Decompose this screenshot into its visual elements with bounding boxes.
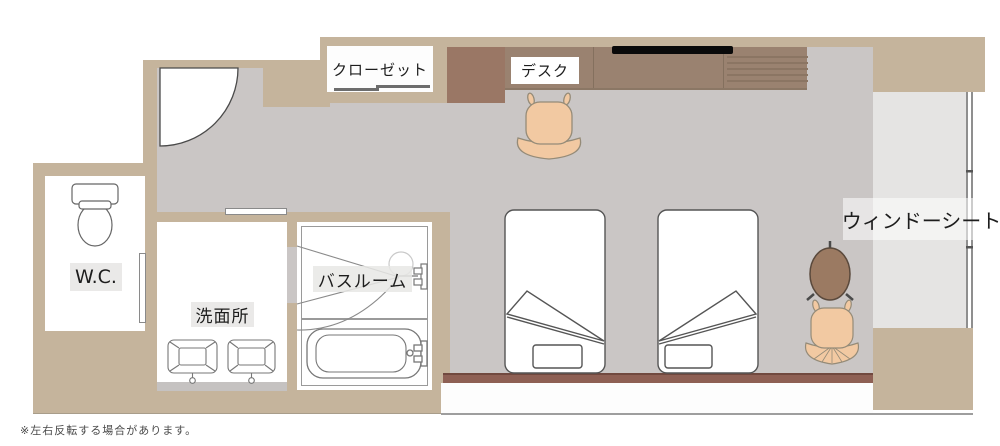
wall-top-right — [873, 37, 985, 92]
desk-divider-1 — [593, 47, 594, 88]
bathroom-divider-line — [301, 318, 428, 320]
vanity-counter — [157, 382, 287, 391]
wall-entry-top — [143, 60, 263, 68]
headboard — [443, 373, 873, 383]
desk-label: デスク — [511, 57, 579, 84]
lower-edge-line — [441, 413, 973, 415]
bathroom-label: バスルーム — [313, 266, 412, 292]
floor-plan: クローゼット デスク W.C. 洗面所 バスルーム ウィンドーシート ※左右反転… — [0, 0, 1000, 446]
footnote: ※左右反転する場合があります。 — [20, 422, 197, 438]
washroom-sliding-door — [225, 208, 287, 215]
wall-bathroom-left-upper — [287, 212, 297, 247]
tv — [612, 46, 733, 54]
wall-entry-left — [143, 60, 157, 222]
washroom-label: 洗面所 — [191, 302, 254, 327]
lower-ledge — [441, 383, 873, 413]
desk-slats — [727, 56, 808, 85]
wc-door — [139, 253, 146, 323]
bathroom-inner-frame — [301, 226, 428, 386]
wall-bathroom-left-lower — [287, 303, 297, 390]
side-cabinet — [447, 47, 505, 103]
wc-room — [45, 176, 145, 331]
wall-bottom-right — [873, 328, 973, 410]
window-seat-label: ウィンドーシート — [843, 198, 1000, 240]
wc-label: W.C. — [70, 263, 122, 291]
closet-label: クローゼット — [327, 46, 433, 92]
wall-bottom — [145, 390, 450, 414]
